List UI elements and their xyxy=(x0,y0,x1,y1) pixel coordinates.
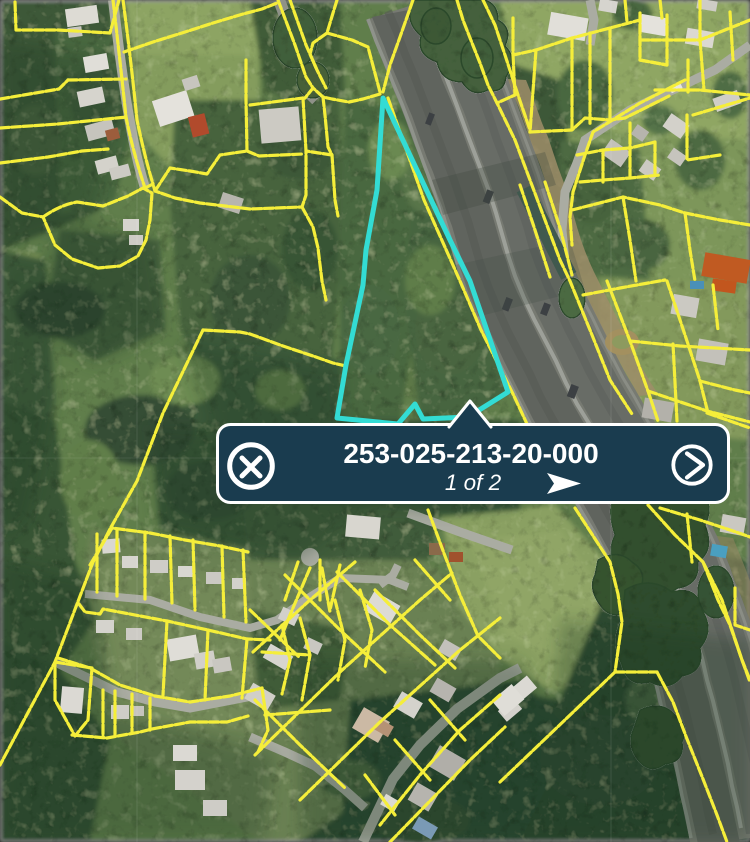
svg-text:1 of 2: 1 of 2 xyxy=(445,470,502,495)
svg-text:253-025-213-20-000: 253-025-213-20-000 xyxy=(343,438,598,469)
